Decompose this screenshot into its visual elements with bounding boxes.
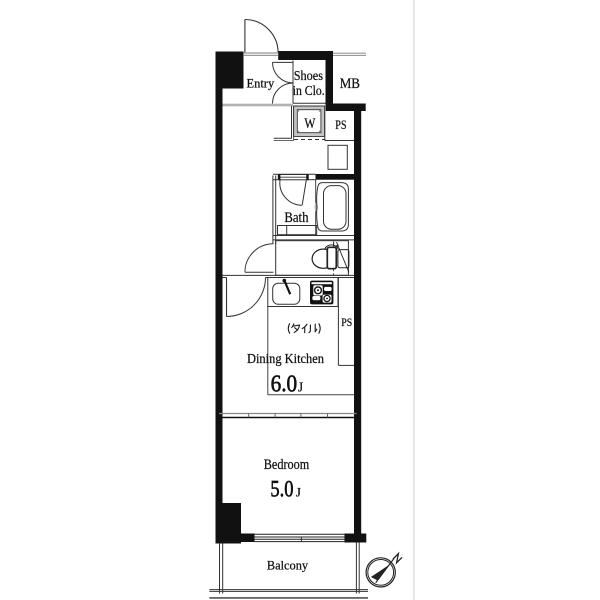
svg-text:PS: PS xyxy=(335,118,346,132)
svg-text:6.0: 6.0 xyxy=(271,371,298,398)
svg-text:J: J xyxy=(298,380,303,395)
svg-text:in Clo.: in Clo. xyxy=(293,83,325,98)
svg-text:Bedroom: Bedroom xyxy=(264,457,310,473)
svg-text:PS: PS xyxy=(341,315,352,329)
svg-text:MB: MB xyxy=(340,76,360,92)
svg-text:J: J xyxy=(296,485,301,500)
svg-text:Balcony: Balcony xyxy=(267,558,309,573)
svg-text:W: W xyxy=(304,116,315,132)
svg-text:Entry: Entry xyxy=(247,76,275,90)
svg-text:5.0: 5.0 xyxy=(270,476,293,502)
svg-text:Shoes: Shoes xyxy=(294,68,323,83)
svg-text:Bath: Bath xyxy=(284,210,309,226)
svg-text:Dining Kitchen: Dining Kitchen xyxy=(247,351,324,366)
